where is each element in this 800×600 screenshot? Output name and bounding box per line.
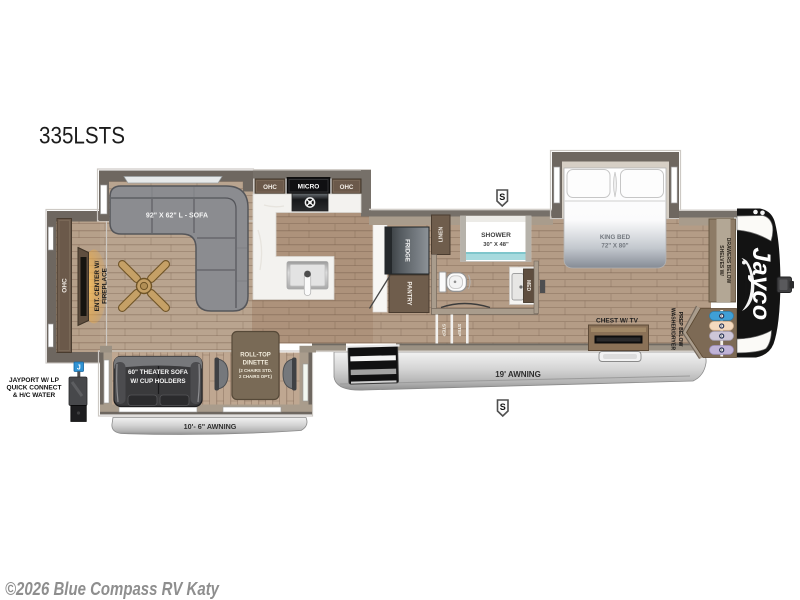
svg-text:SHOWER: SHOWER (481, 232, 511, 239)
svg-text:WASHER/DRYER: WASHER/DRYER (670, 308, 676, 350)
svg-text:STEP: STEP (441, 324, 447, 337)
svg-text:72" X 80": 72" X 80" (601, 243, 628, 250)
svg-text:& H/C WATER: & H/C WATER (13, 392, 56, 399)
svg-text:CHEST W/ TV: CHEST W/ TV (596, 318, 639, 325)
svg-text:60" THEATER SOFA: 60" THEATER SOFA (128, 369, 188, 376)
svg-text:W/ CUP HOLDERS: W/ CUP HOLDERS (130, 378, 185, 385)
svg-text:DINETTE: DINETTE (243, 361, 269, 367)
svg-text:PANTRY: PANTRY (406, 282, 412, 306)
svg-text:QUICK CONNECT: QUICK CONNECT (7, 385, 62, 392)
svg-text:SHELVES W/: SHELVES W/ (718, 245, 724, 276)
svg-text:FIREPLACE: FIREPLACE (102, 268, 109, 304)
svg-text:19' AWNING: 19' AWNING (495, 370, 541, 379)
svg-text:S: S (499, 192, 505, 202)
svg-text:PREP BELOW: PREP BELOW (677, 312, 683, 347)
svg-text:LINEN: LINEN (439, 226, 445, 242)
svg-text:ENT. CENTER W/: ENT. CENTER W/ (94, 260, 101, 311)
svg-text:92" X 62" L - SOFA: 92" X 62" L - SOFA (146, 213, 208, 220)
svg-text:JAYPORT W/ LP: JAYPORT W/ LP (9, 377, 60, 384)
svg-text:S: S (500, 402, 506, 412)
svg-text:KING BED: KING BED (600, 234, 631, 241)
svg-text:OHC: OHC (340, 184, 354, 191)
svg-text:10'- 6" AWNING: 10'- 6" AWNING (184, 422, 237, 431)
svg-text:J: J (77, 365, 81, 372)
svg-text:©2026 Blue Compass RV Katy: ©2026 Blue Compass RV Katy (5, 578, 220, 599)
svg-text:MICRO: MICRO (298, 184, 320, 191)
svg-text:MED: MED (525, 280, 531, 292)
svg-text:335LSTS: 335LSTS (39, 123, 125, 150)
svg-text:DRAWERS BELOW: DRAWERS BELOW (725, 238, 731, 284)
svg-text:30" X 48": 30" X 48" (483, 242, 509, 248)
svg-text:2 CHAIRS OPT.): 2 CHAIRS OPT.) (239, 374, 272, 379)
svg-text:Jayco: Jayco (747, 247, 775, 320)
svg-text:ROLL-TOP: ROLL-TOP (240, 353, 271, 359)
svg-text:FRIDGE: FRIDGE (404, 239, 410, 262)
svg-text:STEP: STEP (456, 324, 462, 337)
svg-text:OHC: OHC (263, 184, 277, 191)
svg-text:(2 CHAIRS STD.: (2 CHAIRS STD. (239, 368, 272, 373)
svg-text:OHC: OHC (62, 278, 69, 293)
